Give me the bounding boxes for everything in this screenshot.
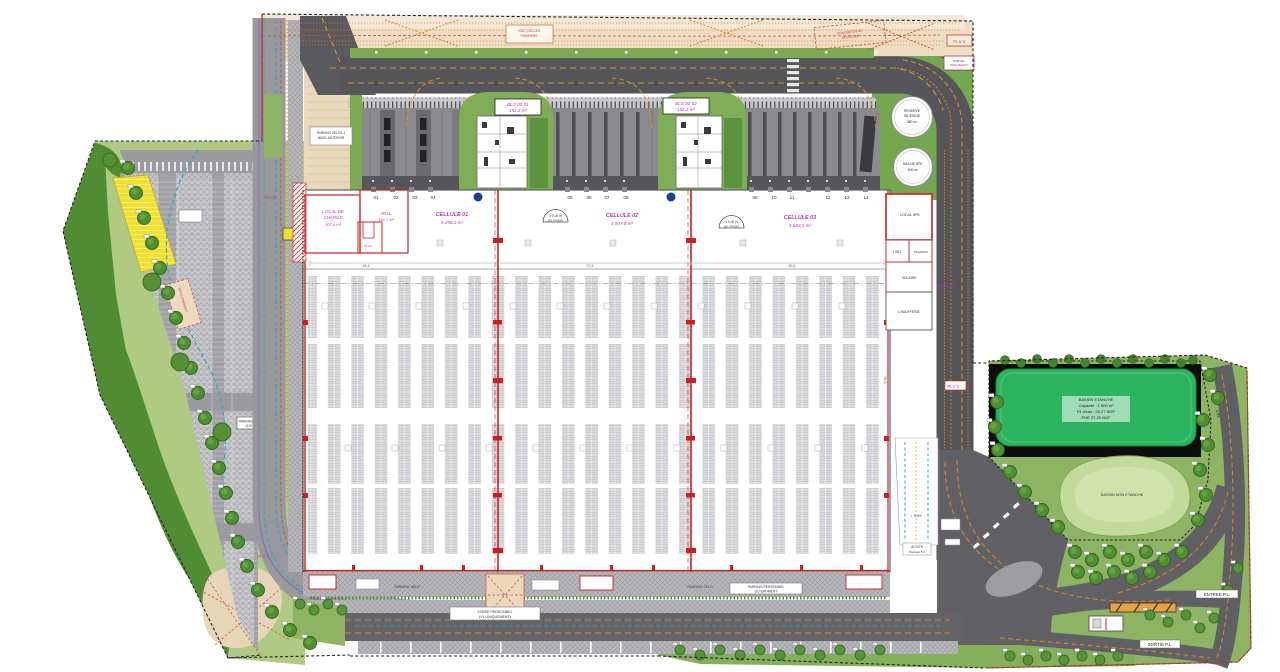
svg-text:3345,1 m²: 3345,1 m²: [938, 284, 956, 288]
svg-text:4.683,0 m²: 4.683,0 m²: [789, 223, 811, 228]
svg-text:PHE 27.29 NGF: PHE 27.29 NGF: [1082, 415, 1111, 420]
svg-text:97,8: 97,8: [587, 264, 594, 268]
svg-text:PI n°5: PI n°5: [265, 195, 277, 200]
svg-text:VOIE D'ACCES: VOIE D'ACCES: [518, 29, 540, 33]
svg-text:POMPIERS: POMPIERS: [521, 34, 538, 38]
svg-text:SORTIE P.L.: SORTIE P.L.: [1148, 642, 1173, 647]
svg-text:08: 08: [623, 195, 629, 200]
svg-text:BLS 00-01: BLS 00-01: [507, 102, 529, 107]
svg-text:CELLULE 01: CELLULE 01: [436, 212, 468, 218]
svg-text:PI n°2: PI n°2: [948, 384, 960, 389]
svg-text:BACHE SPK: BACHE SPK: [903, 162, 923, 166]
svg-text:09: 09: [752, 195, 758, 200]
svg-text:116,7 m²: 116,7 m²: [378, 217, 394, 222]
svg-text:INCENDIE: INCENDIE: [904, 114, 921, 118]
svg-text:RESERVE: RESERVE: [904, 109, 921, 113]
svg-text:CHARGE: CHARGE: [324, 215, 343, 220]
svg-text:05: 05: [567, 195, 573, 200]
svg-text:2 n°3: 2 n°3: [944, 276, 952, 280]
svg-text:500 m³: 500 m³: [908, 168, 919, 172]
svg-text:4.947,8 m²: 4.947,8 m²: [611, 221, 633, 226]
svg-text:HALL: HALL: [381, 211, 393, 216]
svg-text:4.298,2 m²: 4.298,2 m²: [441, 220, 463, 225]
svg-text:NIVEL ANTERIOR: NIVEL ANTERIOR: [318, 136, 345, 140]
svg-text:COULISSANT: COULISSANT: [950, 63, 968, 67]
svg-text:TRANSFO: TRANSFO: [914, 250, 929, 254]
svg-text:CELLULE 02: CELLULE 02: [606, 213, 638, 219]
svg-text:PI n°1: PI n°1: [257, 554, 269, 559]
svg-text:12: 12: [825, 195, 831, 200]
svg-text:LOCAL DE: LOCAL DE: [322, 209, 344, 214]
svg-text:PARKING VELO: PARKING VELO: [688, 585, 713, 589]
svg-text:PARKING VELO: PARKING VELO: [395, 585, 420, 589]
svg-text:SOLAIRE: SOLAIRE: [902, 276, 917, 280]
svg-text:96,8: 96,8: [883, 377, 887, 384]
svg-text:VOIRIE PERSONNEL: VOIRIE PERSONNEL: [477, 610, 512, 614]
svg-text:± 0,00 m: ± 0,00 m: [725, 220, 738, 224]
svg-text:48,4: 48,4: [363, 264, 370, 268]
svg-text:Fil d'eau : 25.27 NGF: Fil d'eau : 25.27 NGF: [1077, 409, 1115, 414]
svg-text:Niveaux 5 6: Niveaux 5 6: [909, 550, 925, 554]
svg-text:± 0,00 m: ± 0,00 m: [549, 214, 562, 218]
svg-text:380 m³: 380 m³: [907, 120, 918, 124]
svg-text:ENTREE P.L.: ENTREE P.L.: [1204, 592, 1230, 597]
svg-text:01: 01: [373, 195, 379, 200]
svg-text:BASSIN NON ETANCHE: BASSIN NON ETANCHE: [1101, 493, 1144, 497]
svg-text:11 m²: 11 m²: [364, 244, 373, 248]
svg-text:07: 07: [604, 195, 610, 200]
svg-text:13: 13: [844, 195, 850, 200]
svg-text:10: 10: [771, 195, 777, 200]
svg-text:DU BATIMENT: DU BATIMENT: [755, 590, 778, 594]
svg-text:ACCES: ACCES: [911, 545, 923, 549]
svg-text:(26,74 NGF): (26,74 NGF): [724, 225, 740, 229]
svg-text:192,3 m²: 192,3 m²: [509, 108, 528, 113]
svg-text:02: 02: [393, 195, 399, 200]
svg-text:Capacité : 1 500 m³: Capacité : 1 500 m³: [1079, 403, 1115, 408]
svg-text:06: 06: [586, 195, 592, 200]
svg-text:46,6: 46,6: [789, 264, 796, 268]
svg-text:11: 11: [790, 195, 795, 200]
svg-text:PARKING VELOS 1: PARKING VELOS 1: [317, 131, 346, 135]
svg-text:192,3 m²: 192,3 m²: [677, 107, 696, 112]
svg-text:14: 14: [863, 195, 869, 200]
svg-text:P1 n°4: P1 n°4: [953, 39, 966, 44]
svg-text:CHAUFFERIE: CHAUFFERIE: [898, 310, 920, 314]
svg-text:03: 03: [412, 195, 418, 200]
svg-text:TGBT: TGBT: [893, 250, 902, 254]
svg-text:PARKING PERSONNEL: PARKING PERSONNEL: [748, 585, 785, 589]
svg-text:(26,74 NGF): (26,74 NGF): [548, 219, 564, 223]
svg-text:307,4 m²: 307,4 m²: [325, 222, 341, 227]
svg-text:BASSIN ETANCHE: BASSIN ETANCHE: [1079, 397, 1114, 402]
svg-text:04: 04: [430, 195, 436, 200]
svg-text:↓ 9,09: ↓ 9,09: [911, 513, 923, 518]
svg-text:LOCAL SPK: LOCAL SPK: [900, 213, 920, 217]
svg-text:(VL UNIQUEMENT): (VL UNIQUEMENT): [479, 615, 511, 619]
svg-text:CELLULE 03: CELLULE 03: [784, 215, 816, 221]
svg-text:BLS 00-02: BLS 00-02: [675, 101, 697, 106]
